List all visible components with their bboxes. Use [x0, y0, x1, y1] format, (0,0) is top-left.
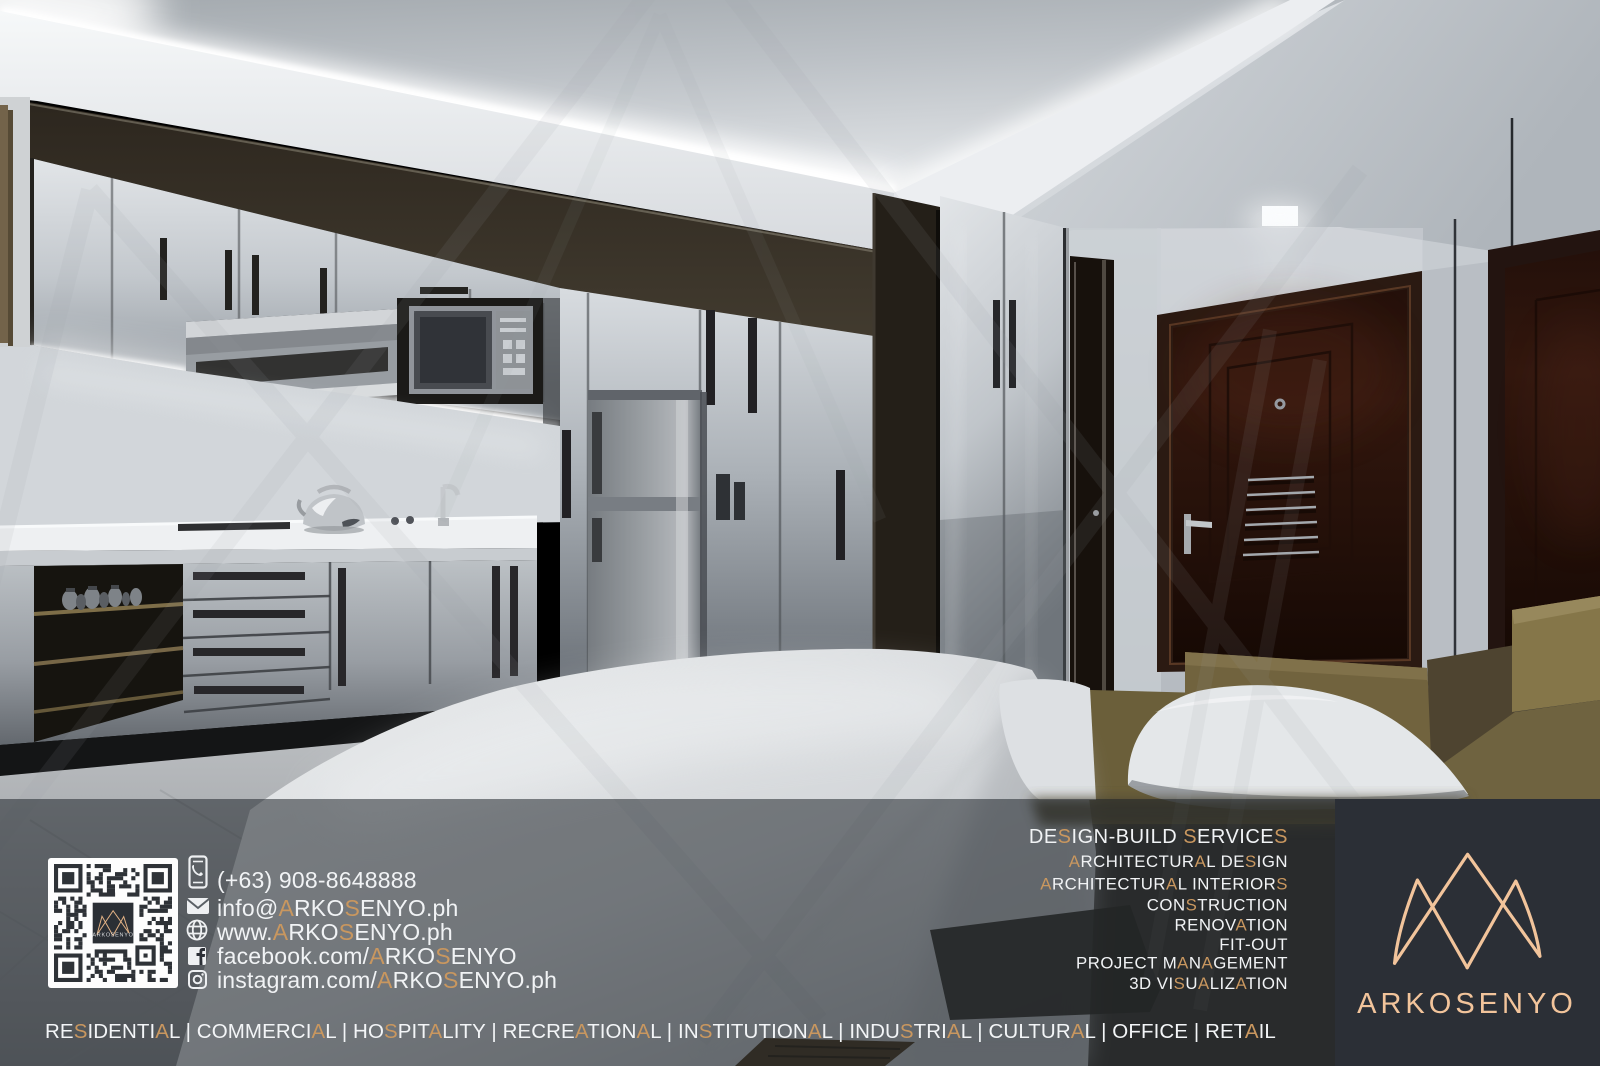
svg-text:3D VISUALIZATION: 3D VISUALIZATION [1129, 974, 1288, 993]
svg-text:FIT-OUT: FIT-OUT [1219, 935, 1288, 954]
svg-text:(+63) 908-8648888: (+63) 908-8648888 [217, 867, 417, 893]
svg-text:RESIDENTIAL | COMMERCIAL | HOS: RESIDENTIAL | COMMERCIAL | HOSPITALITY |… [45, 1020, 1276, 1043]
svg-text:ARKOSENYO: ARKOSENYO [1357, 988, 1577, 1020]
svg-text:PROJECT MANAGEMENT: PROJECT MANAGEMENT [1076, 954, 1288, 973]
svg-text:CONSTRUCTION: CONSTRUCTION [1147, 896, 1288, 915]
svg-text:ARCHITECTURAL INTERIORS: ARCHITECTURAL INTERIORS [1040, 875, 1288, 894]
svg-text:DESIGN-BUILD SERVICES: DESIGN-BUILD SERVICES [1029, 826, 1288, 848]
svg-text:RENOVATION: RENOVATION [1175, 916, 1288, 935]
svg-text:facebook.com/ARKOSENYO: facebook.com/ARKOSENYO [217, 943, 517, 969]
svg-text:ARCHITECTURAL DESIGN: ARCHITECTURAL DESIGN [1069, 852, 1288, 871]
svg-text:www.ARKOSENYO.ph: www.ARKOSENYO.ph [216, 919, 453, 945]
svg-text:ARKOSENYO: ARKOSENYO [92, 932, 133, 938]
svg-text:info@ARKOSENYO.ph: info@ARKOSENYO.ph [217, 895, 459, 921]
svg-text:instagram.com/ARKOSENYO.ph: instagram.com/ARKOSENYO.ph [217, 967, 557, 993]
